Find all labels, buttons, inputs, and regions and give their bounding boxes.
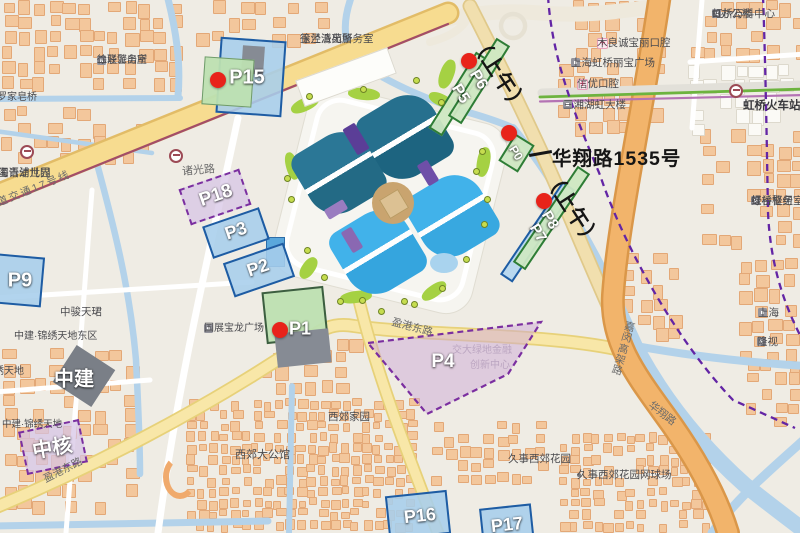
annotation-address: 华翔路1535号 [552, 142, 681, 171]
annotation-morning-mid: （上午） [536, 164, 609, 254]
map-canvas: 交大绿地金融创新中心 P15P6P5P0P8P7P18P3P2P9P1P4P16… [0, 0, 800, 533]
annotation-leader-line [529, 150, 552, 157]
annotations-layer: （上午） （上午） 华翔路1535号 [0, 0, 800, 533]
annotation-morning-top: （上午） [463, 29, 536, 119]
